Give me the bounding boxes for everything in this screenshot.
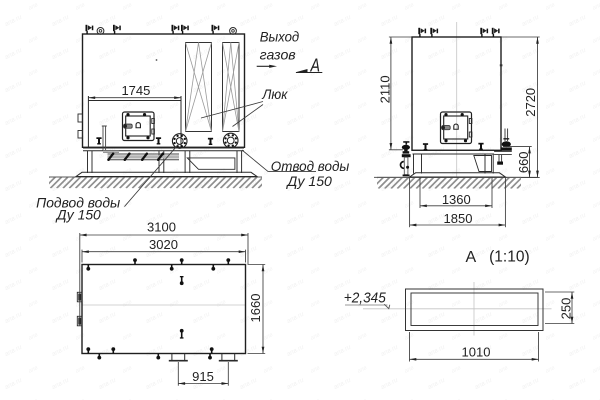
svg-text:Выход: Выход <box>260 29 300 45</box>
svg-text:газов: газов <box>260 47 296 63</box>
svg-text:2720: 2720 <box>523 88 538 117</box>
svg-text:(1:10): (1:10) <box>489 248 530 265</box>
svg-text:+2,345: +2,345 <box>344 290 387 307</box>
svg-text:Люк: Люк <box>261 86 288 102</box>
svg-text:Ду 150: Ду 150 <box>55 207 101 223</box>
svg-text:3100: 3100 <box>147 219 176 234</box>
svg-text:1010: 1010 <box>462 344 491 359</box>
svg-text:915: 915 <box>192 369 214 384</box>
svg-text:1850: 1850 <box>444 211 473 226</box>
svg-text:660: 660 <box>516 151 531 173</box>
svg-text:1745: 1745 <box>121 83 150 98</box>
svg-text:Ду 150: Ду 150 <box>285 173 332 189</box>
svg-text:2110: 2110 <box>378 75 393 103</box>
svg-text:1660: 1660 <box>248 294 263 323</box>
svg-text:3020: 3020 <box>149 237 178 252</box>
svg-text:250: 250 <box>558 298 573 320</box>
svg-text:1360: 1360 <box>442 192 471 207</box>
svg-text:А: А <box>465 249 476 266</box>
